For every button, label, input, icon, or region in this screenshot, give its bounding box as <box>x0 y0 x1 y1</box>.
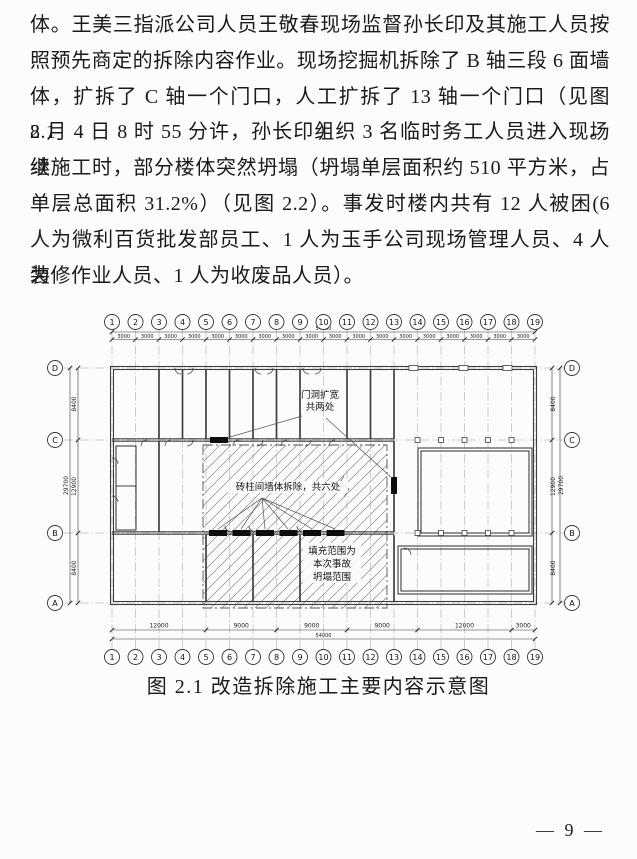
svg-text:3000: 3000 <box>188 334 201 340</box>
paragraph-line: 人为微利百货批发部员工、1 人为玉手公司现场管理人员、4 人为 <box>30 223 610 259</box>
svg-text:12: 12 <box>365 318 375 327</box>
paragraph-line: 体，扩拆了 C 轴一个门口，人工扩拆了 13 轴一个门口（见图 2.1）。 <box>30 80 610 116</box>
svg-text:6: 6 <box>227 653 232 662</box>
label-collapse-fill: 坍塌范围 <box>313 571 351 583</box>
document-page: { "page": { "paragraph_lines": [ "体。王美三指… <box>0 0 637 859</box>
svg-text:10: 10 <box>318 318 328 327</box>
label-collapse-fill: 填充范围为 <box>308 545 356 557</box>
svg-text:15: 15 <box>436 318 446 327</box>
paragraph-line: 续施工时，部分楼体突然坍塌（坍塌单层面积约 510 平方米，占 <box>30 151 610 187</box>
svg-text:3000: 3000 <box>258 334 271 340</box>
svg-text:12000: 12000 <box>149 623 168 630</box>
svg-text:3000: 3000 <box>352 334 365 340</box>
svg-text:3000: 3000 <box>211 334 224 340</box>
figure-caption: 图 2.1 改造拆除施工主要内容示意图 <box>0 670 637 699</box>
body-paragraph: 体。王美三指派公司人员王敬春现场监督孙长印及其施工人员按 照预先商定的拆除内容作… <box>30 8 610 294</box>
paragraph-line: 照预先商定的拆除内容作业。现场挖掘机拆除了 B 轴三段 6 面墙 <box>30 44 610 80</box>
svg-text:C: C <box>569 436 575 445</box>
svg-text:3000: 3000 <box>282 334 295 340</box>
svg-text:19: 19 <box>530 318 540 327</box>
svg-text:1: 1 <box>109 318 114 327</box>
svg-text:1: 1 <box>109 653 114 662</box>
svg-text:8: 8 <box>274 653 279 662</box>
label-collapse-fill: 本次事故 <box>313 558 352 570</box>
svg-text:3000: 3000 <box>376 334 389 340</box>
collapse-hatch-region <box>203 445 387 608</box>
svg-text:12900: 12900 <box>550 477 557 496</box>
svg-text:9000: 9000 <box>234 623 249 630</box>
svg-text:16: 16 <box>459 653 469 662</box>
svg-text:29700: 29700 <box>558 476 565 495</box>
svg-text:3000: 3000 <box>517 334 530 340</box>
paragraph-line: 8 月 4 日 8 时 55 分许，孙长印组织 3 名临时务工人员进入现场继 <box>30 115 610 151</box>
svg-text:54000: 54000 <box>316 633 332 639</box>
svg-text:3000: 3000 <box>235 334 248 340</box>
svg-text:8: 8 <box>274 318 279 327</box>
svg-text:3000: 3000 <box>399 334 412 340</box>
svg-text:8400: 8400 <box>71 560 78 575</box>
svg-text:B: B <box>569 529 575 538</box>
svg-text:3000: 3000 <box>470 334 483 340</box>
svg-text:3: 3 <box>156 318 161 327</box>
svg-text:13: 13 <box>389 318 399 327</box>
paragraph-line: 装修作业人员、1 人为收废品人员）。 <box>30 259 610 295</box>
svg-text:3000: 3000 <box>305 334 318 340</box>
svg-text:5: 5 <box>203 653 208 662</box>
svg-text:B: B <box>52 529 58 538</box>
svg-text:12: 12 <box>365 653 375 662</box>
svg-text:9: 9 <box>297 318 302 327</box>
svg-text:2: 2 <box>133 653 138 662</box>
svg-text:9: 9 <box>297 653 302 662</box>
svg-text:29700: 29700 <box>63 476 70 495</box>
svg-text:3: 3 <box>156 653 161 662</box>
svg-text:9000: 9000 <box>304 623 319 630</box>
svg-text:18: 18 <box>506 318 516 327</box>
svg-text:3000: 3000 <box>493 334 506 340</box>
svg-text:5: 5 <box>203 318 208 327</box>
label-door-widen: 门洞扩宽 <box>301 389 340 401</box>
svg-text:9000: 9000 <box>375 623 390 630</box>
svg-text:17: 17 <box>483 318 493 327</box>
svg-text:8400: 8400 <box>71 396 78 411</box>
paragraph-line: 单层总面积 31.2%）（见图 2.2）。事发时楼内共有 12 人被困(6 <box>30 187 610 223</box>
svg-text:7: 7 <box>250 318 255 327</box>
paragraph-line: 体。王美三指派公司人员王敬春现场监督孙长印及其施工人员按 <box>30 8 610 44</box>
svg-text:3000: 3000 <box>164 334 177 340</box>
svg-text:3000: 3000 <box>117 334 130 340</box>
svg-text:8400: 8400 <box>550 560 557 575</box>
svg-text:8400: 8400 <box>550 396 557 411</box>
svg-text:14: 14 <box>412 653 422 662</box>
svg-text:11: 11 <box>342 653 352 662</box>
svg-text:15: 15 <box>436 653 446 662</box>
svg-text:D: D <box>569 364 575 373</box>
svg-text:3000: 3000 <box>141 334 154 340</box>
svg-text:11: 11 <box>342 318 352 327</box>
svg-text:3000: 3000 <box>516 623 531 630</box>
svg-text:A: A <box>52 599 58 608</box>
label-wall-demolish: 砖柱间墙体拆除，共六处 <box>236 481 341 493</box>
svg-text:12000: 12000 <box>455 623 474 630</box>
svg-text:16: 16 <box>459 318 469 327</box>
figure-2-1-floor-plan: 5400030003000300030003000300030003000300… <box>40 306 585 666</box>
svg-text:10: 10 <box>318 653 328 662</box>
svg-text:13: 13 <box>389 653 399 662</box>
svg-text:3000: 3000 <box>329 334 342 340</box>
svg-text:6: 6 <box>227 318 232 327</box>
svg-text:12900: 12900 <box>71 477 78 496</box>
svg-text:17: 17 <box>483 653 493 662</box>
svg-text:18: 18 <box>506 653 516 662</box>
svg-text:2: 2 <box>133 318 138 327</box>
svg-text:14: 14 <box>412 318 422 327</box>
page-number: — 9 — <box>536 820 605 841</box>
svg-text:D: D <box>52 364 58 373</box>
svg-text:7: 7 <box>250 653 255 662</box>
svg-text:C: C <box>52 436 58 445</box>
svg-text:4: 4 <box>180 653 185 662</box>
svg-text:4: 4 <box>180 318 185 327</box>
svg-text:A: A <box>569 599 575 608</box>
svg-text:3000: 3000 <box>423 334 436 340</box>
svg-text:3000: 3000 <box>446 334 459 340</box>
svg-text:19: 19 <box>530 653 540 662</box>
svg-text:共两处: 共两处 <box>306 401 335 413</box>
